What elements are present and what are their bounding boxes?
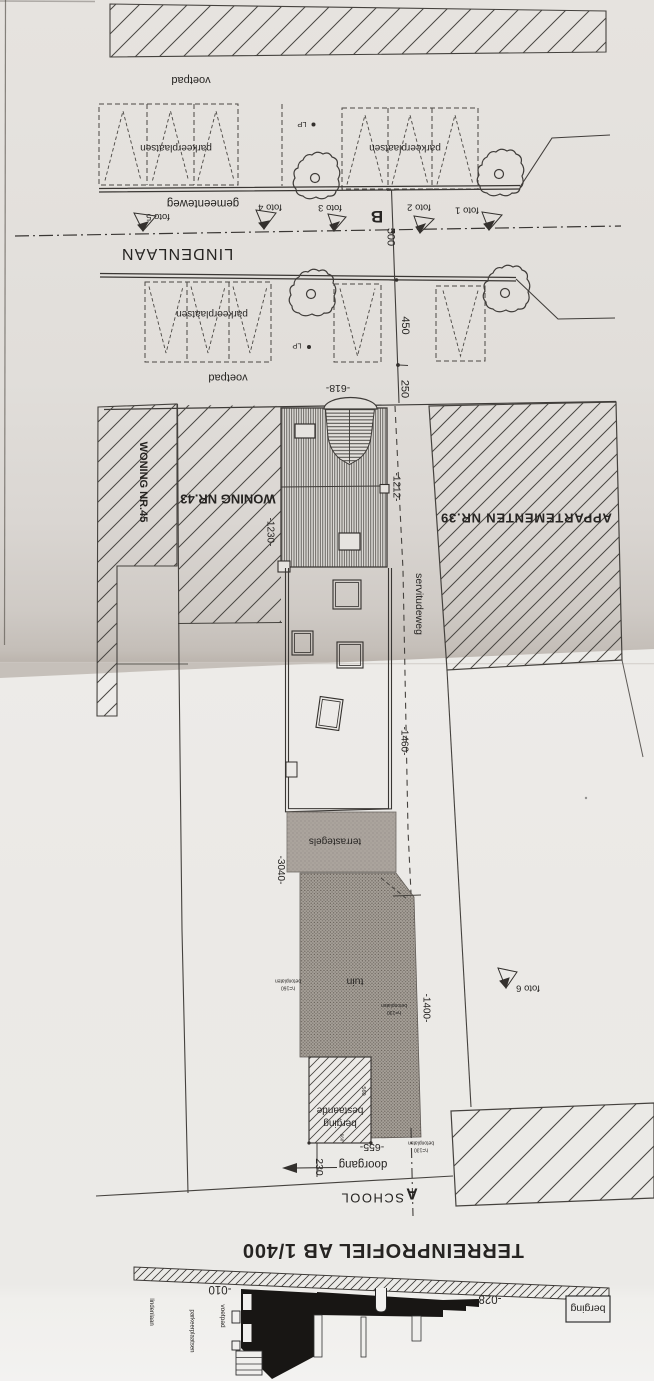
svg-text:voetpad: voetpad — [219, 1304, 226, 1328]
svg-text:voetpad: voetpad — [208, 372, 247, 384]
svg-text:-1460-: -1460- — [399, 727, 410, 756]
svg-text:bestaande: bestaande — [316, 1105, 363, 1116]
svg-text:-028: -028 — [478, 1293, 501, 1305]
svg-text:560: 560 — [360, 1086, 366, 1095]
svg-text:voetpad: voetpad — [171, 74, 210, 86]
svg-text:lindenlaan: lindenlaan — [148, 1298, 154, 1325]
svg-text:servitudeweg: servitudeweg — [413, 573, 425, 635]
svg-text:h=130: h=130 — [387, 1009, 401, 1015]
svg-text:-1230-: -1230- — [265, 518, 276, 547]
svg-text:doorgang: doorgang — [339, 1158, 388, 1170]
svg-text:betonplaten: betonplaten — [381, 1002, 407, 1008]
svg-text:WONING NR.43: WONING NR.43 — [180, 492, 275, 507]
svg-text:LP: LP — [292, 342, 301, 351]
svg-text:450: 450 — [399, 316, 411, 334]
svg-text:parkeerplaatsen: parkeerplaatsen — [140, 142, 212, 153]
svg-text:betonplaten: betonplaten — [275, 978, 301, 984]
svg-text:berging: berging — [323, 1118, 356, 1129]
svg-text:foto 6: foto 6 — [516, 983, 540, 994]
svg-text:SCHOOL: SCHOOL — [340, 1191, 404, 1206]
svg-text:TERREINPROFIEL AB 1/400: TERREINPROFIEL AB 1/400 — [242, 1239, 524, 1261]
svg-text:560: 560 — [340, 1134, 345, 1142]
svg-text:-655-: -655- — [359, 1141, 384, 1153]
svg-text:-618-: -618- — [325, 382, 350, 394]
svg-text:250: 250 — [399, 380, 411, 398]
svg-text:parkeerplaatsen: parkeerplaatsen — [369, 142, 441, 153]
svg-text:A: A — [406, 1184, 418, 1201]
svg-text:-1212-: -1212- — [391, 473, 402, 502]
svg-text:parkeerplaatsen: parkeerplaatsen — [176, 308, 248, 319]
svg-text:APPARTEMENTEN NR.39: APPARTEMENTEN NR.39 — [440, 511, 612, 526]
svg-text:WONING NR.45: WONING NR.45 — [137, 442, 149, 523]
svg-text:foto 3: foto 3 — [318, 202, 342, 213]
svg-text:500: 500 — [385, 228, 397, 246]
svg-text:terrastegels: terrastegels — [309, 836, 361, 847]
svg-text:230: 230 — [313, 1158, 325, 1176]
svg-text:berging: berging — [570, 1302, 605, 1314]
svg-text:gemeenteweg: gemeenteweg — [167, 197, 239, 209]
svg-text:LINDENLAAN: LINDENLAAN — [121, 245, 233, 262]
svg-text:foto 5: foto 5 — [146, 211, 170, 222]
svg-text:-1400-: -1400- — [421, 994, 432, 1023]
svg-text:LP: LP — [297, 120, 306, 129]
svg-text:-3040-: -3040- — [275, 856, 286, 885]
svg-text:h=130: h=130 — [414, 1147, 428, 1153]
svg-text:tuin: tuin — [346, 976, 363, 988]
svg-text:B: B — [371, 207, 383, 226]
svg-text:parkeerplaatsen: parkeerplaatsen — [189, 1309, 195, 1352]
svg-text:-010: -010 — [208, 1283, 231, 1295]
svg-text:h=160: h=160 — [281, 985, 295, 991]
svg-text:foto 2: foto 2 — [407, 202, 431, 213]
svg-text:foto 1: foto 1 — [455, 205, 479, 216]
